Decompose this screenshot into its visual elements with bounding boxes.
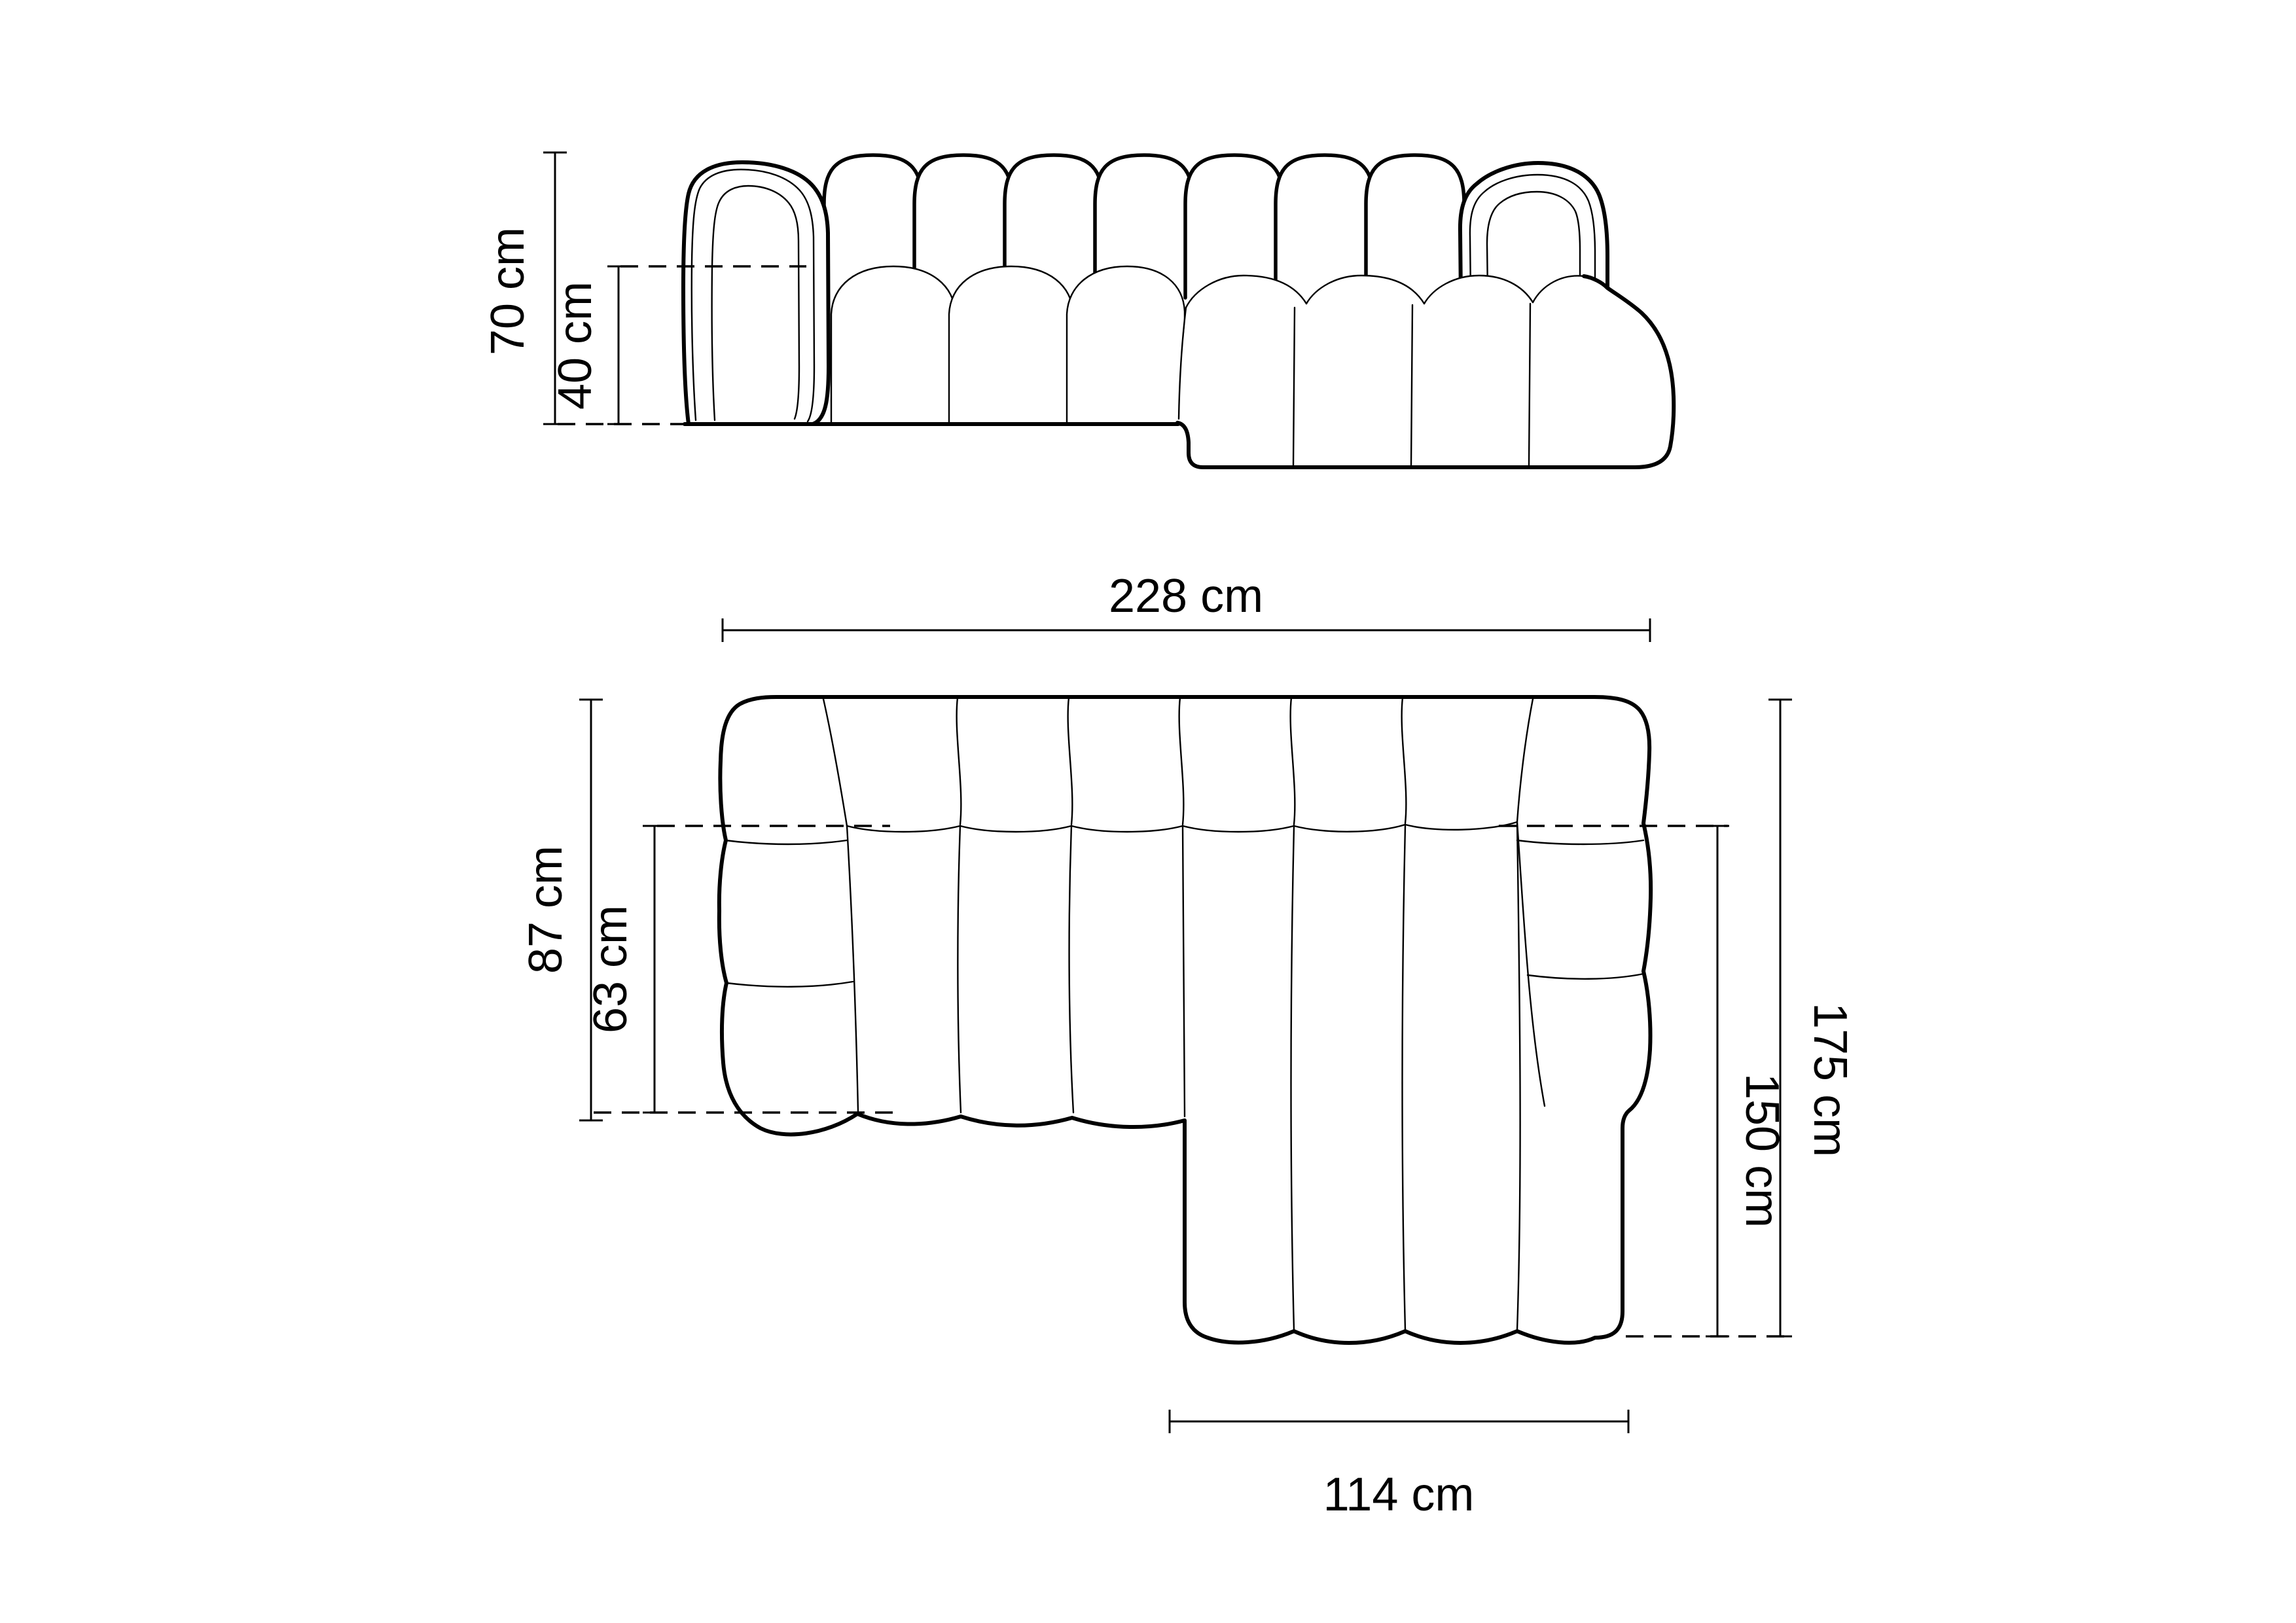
seat-cushion [949, 266, 1073, 424]
left-armrest [683, 162, 829, 424]
dim-label-side-total-depth: 175 cm [1804, 1003, 1856, 1157]
dim-label-total-height: 70 cm [482, 227, 534, 355]
sofa-dimension-diagram: 70 cm 40 cm [0, 0, 2296, 1623]
dim-label-chaise-width: 114 cm [1323, 1469, 1475, 1521]
seat-cushions [831, 266, 1185, 424]
dim-label-seat-depth: 63 cm [584, 905, 637, 1033]
dim-label-seat-height: 40 cm [549, 281, 601, 410]
chaise-body [1177, 276, 1674, 467]
dim-label-chaise-depth: 150 cm [1736, 1073, 1788, 1228]
chaise-front [1177, 276, 1674, 467]
seat-cushion [831, 266, 956, 424]
seat-cushion [1067, 266, 1185, 424]
dim-label-total-width: 228 cm [1109, 570, 1263, 622]
dim-label-total-depth: 87 cm [520, 846, 572, 974]
diagram-canvas: 70 cm 40 cm [0, 0, 2296, 1623]
dim-seat-height: 40 cm [549, 266, 630, 424]
